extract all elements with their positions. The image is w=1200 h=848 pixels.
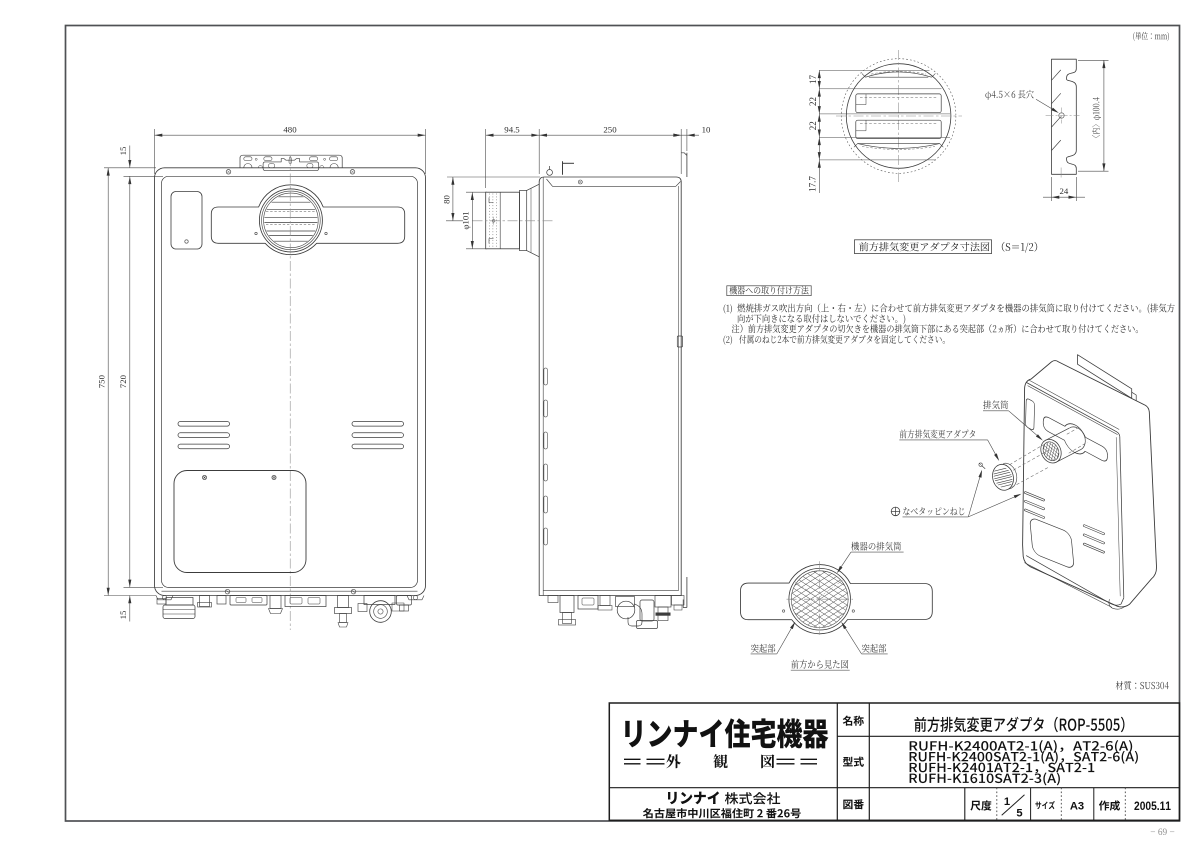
svg-text:720: 720	[118, 374, 128, 388]
svg-text:24: 24	[1060, 186, 1069, 196]
svg-text:94.5: 94.5	[504, 125, 520, 135]
svg-text:250: 250	[603, 125, 617, 135]
svg-text:2005.11: 2005.11	[1134, 799, 1171, 813]
svg-text:22: 22	[808, 97, 818, 106]
svg-text:750: 750	[97, 374, 107, 388]
svg-text:22: 22	[808, 121, 818, 130]
svg-text:φ101: φ101	[461, 211, 471, 229]
svg-text:15: 15	[118, 146, 128, 155]
svg-text:5: 5	[1016, 808, 1022, 820]
svg-text:17.7: 17.7	[807, 176, 817, 192]
svg-text:− 69 −: − 69 −	[1150, 828, 1174, 838]
svg-text:80: 80	[441, 195, 451, 204]
svg-text:15: 15	[118, 610, 128, 619]
svg-text:480: 480	[283, 125, 297, 135]
svg-text:A3: A3	[1070, 801, 1084, 813]
svg-text:10: 10	[702, 125, 711, 135]
svg-text:17: 17	[808, 75, 818, 85]
svg-text:1: 1	[1004, 796, 1010, 808]
